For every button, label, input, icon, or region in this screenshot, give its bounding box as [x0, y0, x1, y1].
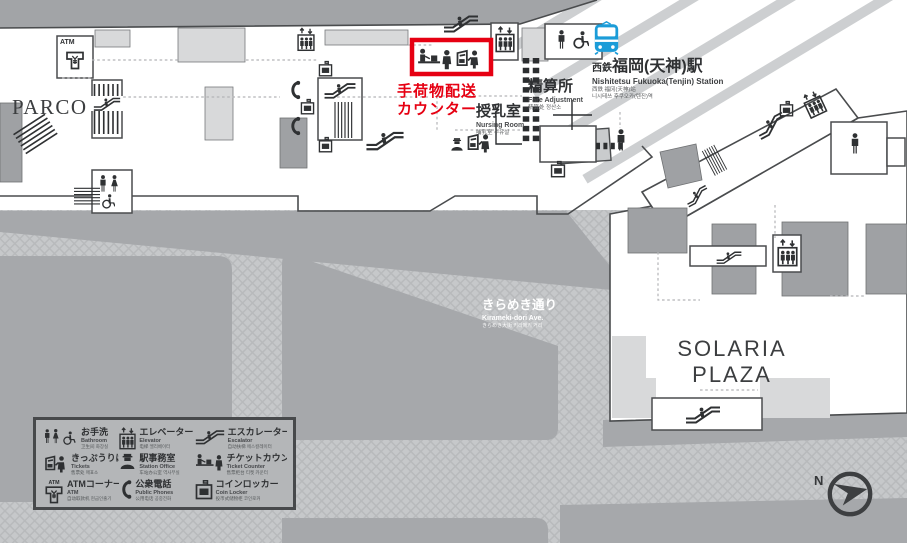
- station-name-en: Nishitetsu Fukuoka(Tenjin) Station: [592, 78, 723, 86]
- train-icon: [595, 22, 618, 54]
- station-floor-map: PARCO ATM 手荷物配送 カウンター 授乳室 Nursing Room 哺…: [0, 0, 907, 543]
- legend-item-atm: ATM ATMコーナー ATM 自动取款机 현금인출기: [44, 477, 119, 504]
- nursing-room-label: 授乳室: [476, 104, 521, 120]
- legend-label: きっぷうりば: [71, 451, 119, 464]
- legend-label-sub: 电梯 엘리베이터: [139, 444, 193, 450]
- fare-adjustment-label-en: Fare Adjustment: [528, 97, 583, 104]
- legend-label: チケットカウンター: [227, 451, 287, 464]
- legend-label-sub: 售票处 매표소: [71, 470, 119, 476]
- phone-icon: [119, 479, 132, 500]
- svg-text:ATM: ATM: [48, 480, 60, 486]
- fare-adjustment-label-sub: 精算处 정산소: [528, 106, 561, 112]
- station-name-main: 福岡(天神)駅: [612, 58, 703, 75]
- baggage-counter-label-line2: カウンター: [397, 102, 477, 118]
- legend-label-sub: 投币式储物柜 코인로커: [216, 496, 279, 502]
- ticket-counter-icon: [195, 453, 224, 471]
- station-name-prefix: 西鉄: [592, 63, 612, 74]
- nursing-room-label-sub: 哺乳室 수유실: [476, 131, 509, 137]
- legend-label: お手洗: [81, 425, 108, 438]
- fare-adjustment-label: 精算所: [528, 79, 573, 95]
- kirameki-street-label-sub: きらめき大街 키라메키 거리: [482, 324, 542, 329]
- legend-label-sub: 自动扶梯 에스컬레이터: [228, 444, 287, 450]
- map-legend: お手洗 Bathroom 卫生间 화장실 エレベーター Elevator 电梯 …: [33, 417, 296, 510]
- legend-label: エレベーター: [139, 425, 193, 438]
- legend-label-sub: 卫生间 화장실: [81, 444, 108, 450]
- compass-n-label: N: [814, 474, 823, 488]
- station-staff-icon: [119, 453, 136, 469]
- legend-label: ATMコーナー: [67, 477, 119, 490]
- legend-label: コインロッカー: [216, 477, 279, 490]
- atm-booth-label: ATM: [60, 39, 75, 46]
- legend-item-ticket-counter: チケットカウンター Ticket Counter 售票柜台 티켓 카운터: [195, 451, 287, 476]
- ticket-machine-icon: [44, 453, 68, 473]
- legend-label-sub: 自动取款机 현금인출기: [67, 496, 119, 502]
- restroom-icon: [44, 427, 78, 447]
- parco-label: PARCO: [12, 96, 88, 118]
- legend-item-station-office: 駅事務室 Station Office 车站办公室 역사무실: [119, 451, 194, 476]
- legend-item-elevator: エレベーター Elevator 电梯 엘리베이터: [119, 425, 194, 450]
- baggage-counter-label-line1: 手荷物配送: [397, 84, 477, 100]
- escalator-icon: [195, 427, 225, 446]
- nursing-room-label-en: Nursing Room: [476, 122, 524, 129]
- elevator-icon: [119, 427, 136, 450]
- kirameki-street-label: きらめき通り: [482, 299, 557, 312]
- solaria-plaza-label-line1: SOLARIA: [662, 337, 802, 360]
- solaria-plaza-label-line2: PLAZA: [662, 363, 802, 386]
- legend-label-sub: 公用电话 공중전화: [135, 496, 173, 502]
- legend-label: 駅事務室: [139, 451, 179, 464]
- legend-item-restroom: お手洗 Bathroom 卫生间 화장실: [44, 425, 119, 450]
- kirameki-street-label-en: Kirameki-dori Ave.: [482, 315, 543, 322]
- station-name-label: 西鉄福岡(天神)駅: [592, 59, 703, 76]
- legend-item-public-phone: 公衆電話 Public Phones 公用电话 공중전화: [119, 477, 194, 504]
- legend-item-coin-locker: コインロッカー Coin Locker 投币式储物柜 코인로커: [195, 477, 287, 504]
- legend-label: 公衆電話: [135, 477, 173, 490]
- legend-label: エスカレーター: [228, 425, 287, 438]
- legend-label-sub: 售票柜台 티켓 카운터: [227, 470, 287, 476]
- atm-icon: ATM: [44, 479, 64, 504]
- station-name-zh: 西鉄 福冈(天神)站: [592, 88, 636, 94]
- station-name-ko: 니시테쓰 후쿠오카(텐진)역: [592, 95, 653, 101]
- legend-item-tickets: きっぷうりば Tickets 售票处 매표소: [44, 451, 119, 476]
- coin-locker-icon: [195, 479, 213, 500]
- legend-item-escalator: エスカレーター Escalator 自动扶梯 에스컬레이터: [195, 425, 287, 450]
- legend-label-sub: 车站办公室 역사무실: [139, 470, 179, 476]
